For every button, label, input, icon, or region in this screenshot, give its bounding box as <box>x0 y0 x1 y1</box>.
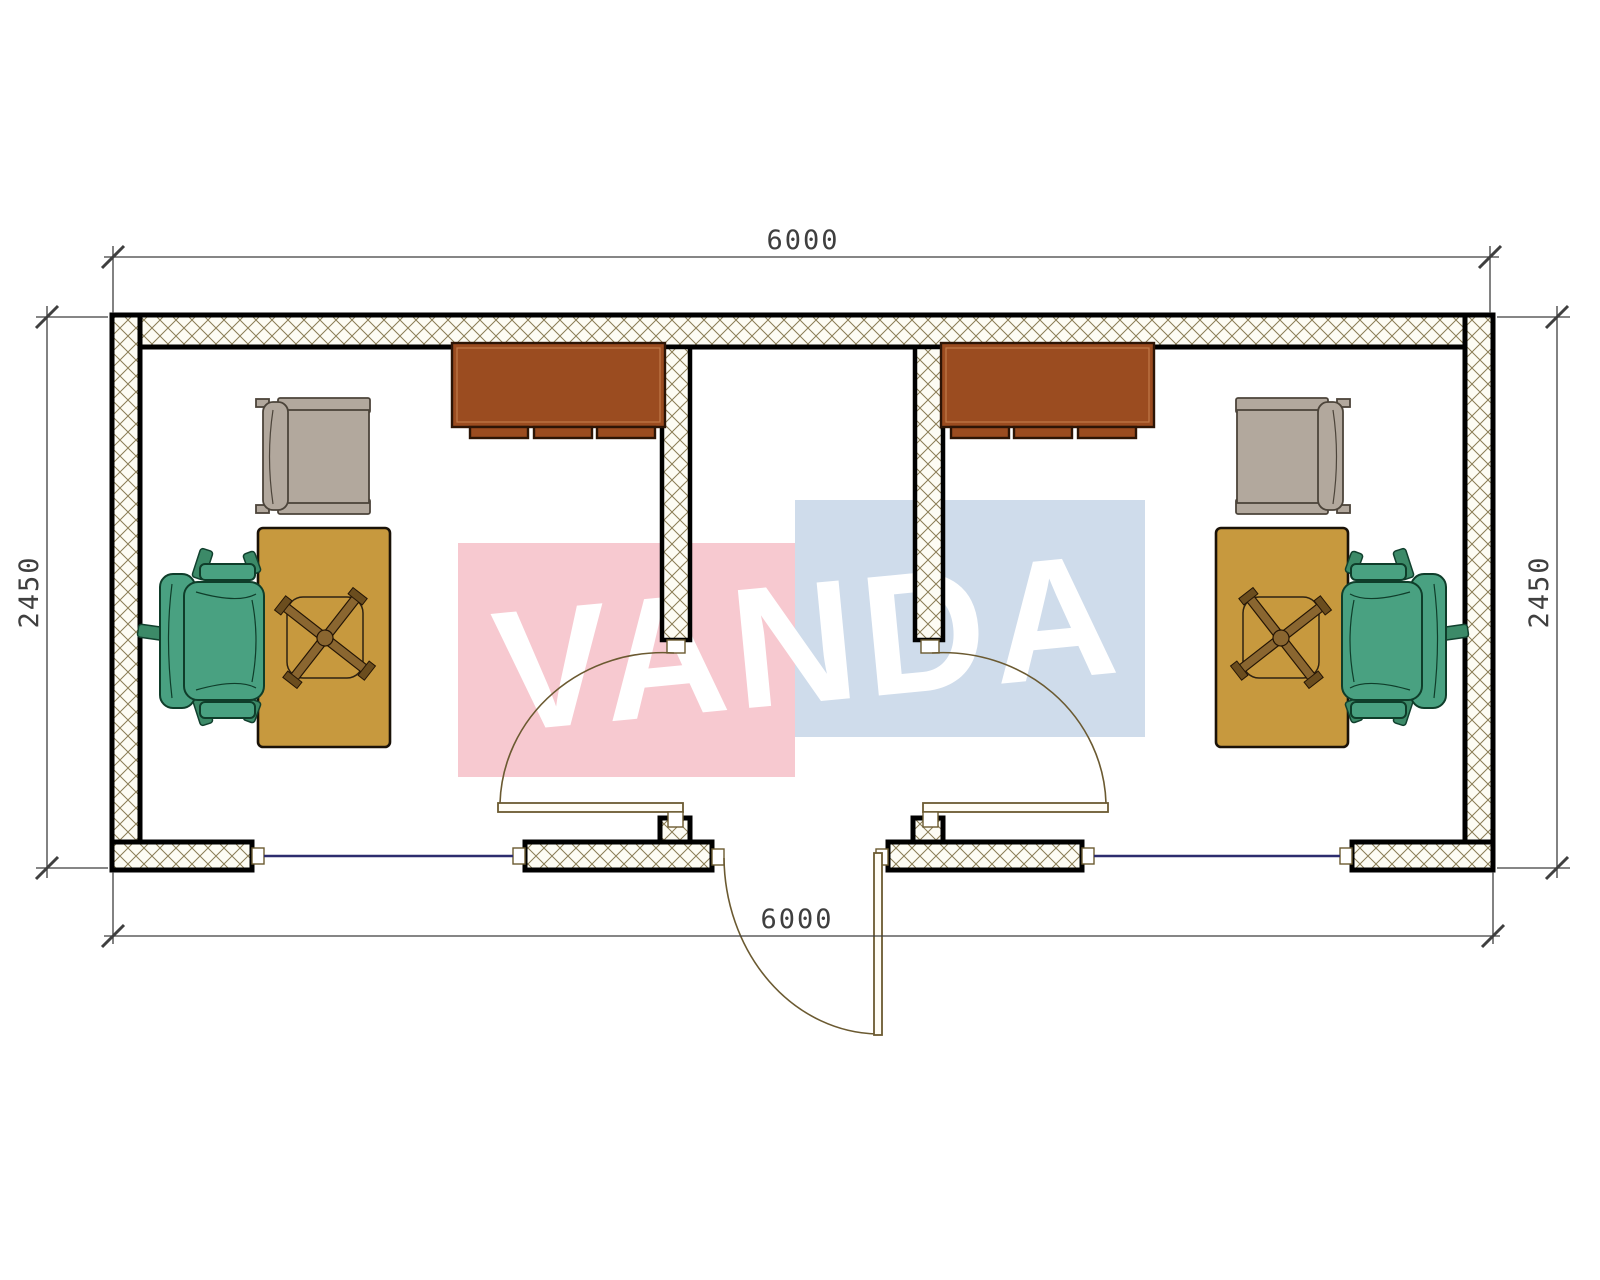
dimension-label-left: 2450 <box>14 555 45 628</box>
wall-right <box>1465 315 1493 870</box>
wall-bottom-mid-right <box>888 842 1082 870</box>
window-left <box>252 848 525 864</box>
wall-left <box>112 315 140 870</box>
partition-left <box>662 347 690 640</box>
entrance-door <box>712 849 888 1035</box>
dimension-bottom: 6000 <box>102 872 1504 947</box>
office-right-contents <box>921 343 1469 827</box>
dimension-right: 2450 <box>1497 306 1570 879</box>
wall-top <box>112 315 1493 347</box>
window-right <box>1082 848 1352 864</box>
floor-plan-page: VANDA <box>0 0 1600 1280</box>
partition-right <box>915 347 943 640</box>
floor-plan-drawing: 6000 6000 2450 2450 <box>0 0 1600 1280</box>
dimension-top: 6000 <box>102 225 1501 313</box>
dimension-label-right: 2450 <box>1524 555 1555 628</box>
wall-bottom-right-corner <box>1352 842 1493 870</box>
dimension-left: 2450 <box>14 306 108 879</box>
office-left-contents <box>137 343 685 827</box>
wall-bottom-left-corner <box>112 842 252 870</box>
dimension-label-top: 6000 <box>766 225 839 256</box>
partition-walls <box>662 347 943 640</box>
wall-bottom-mid-left <box>525 842 712 870</box>
dimension-label-bottom: 6000 <box>760 904 833 935</box>
